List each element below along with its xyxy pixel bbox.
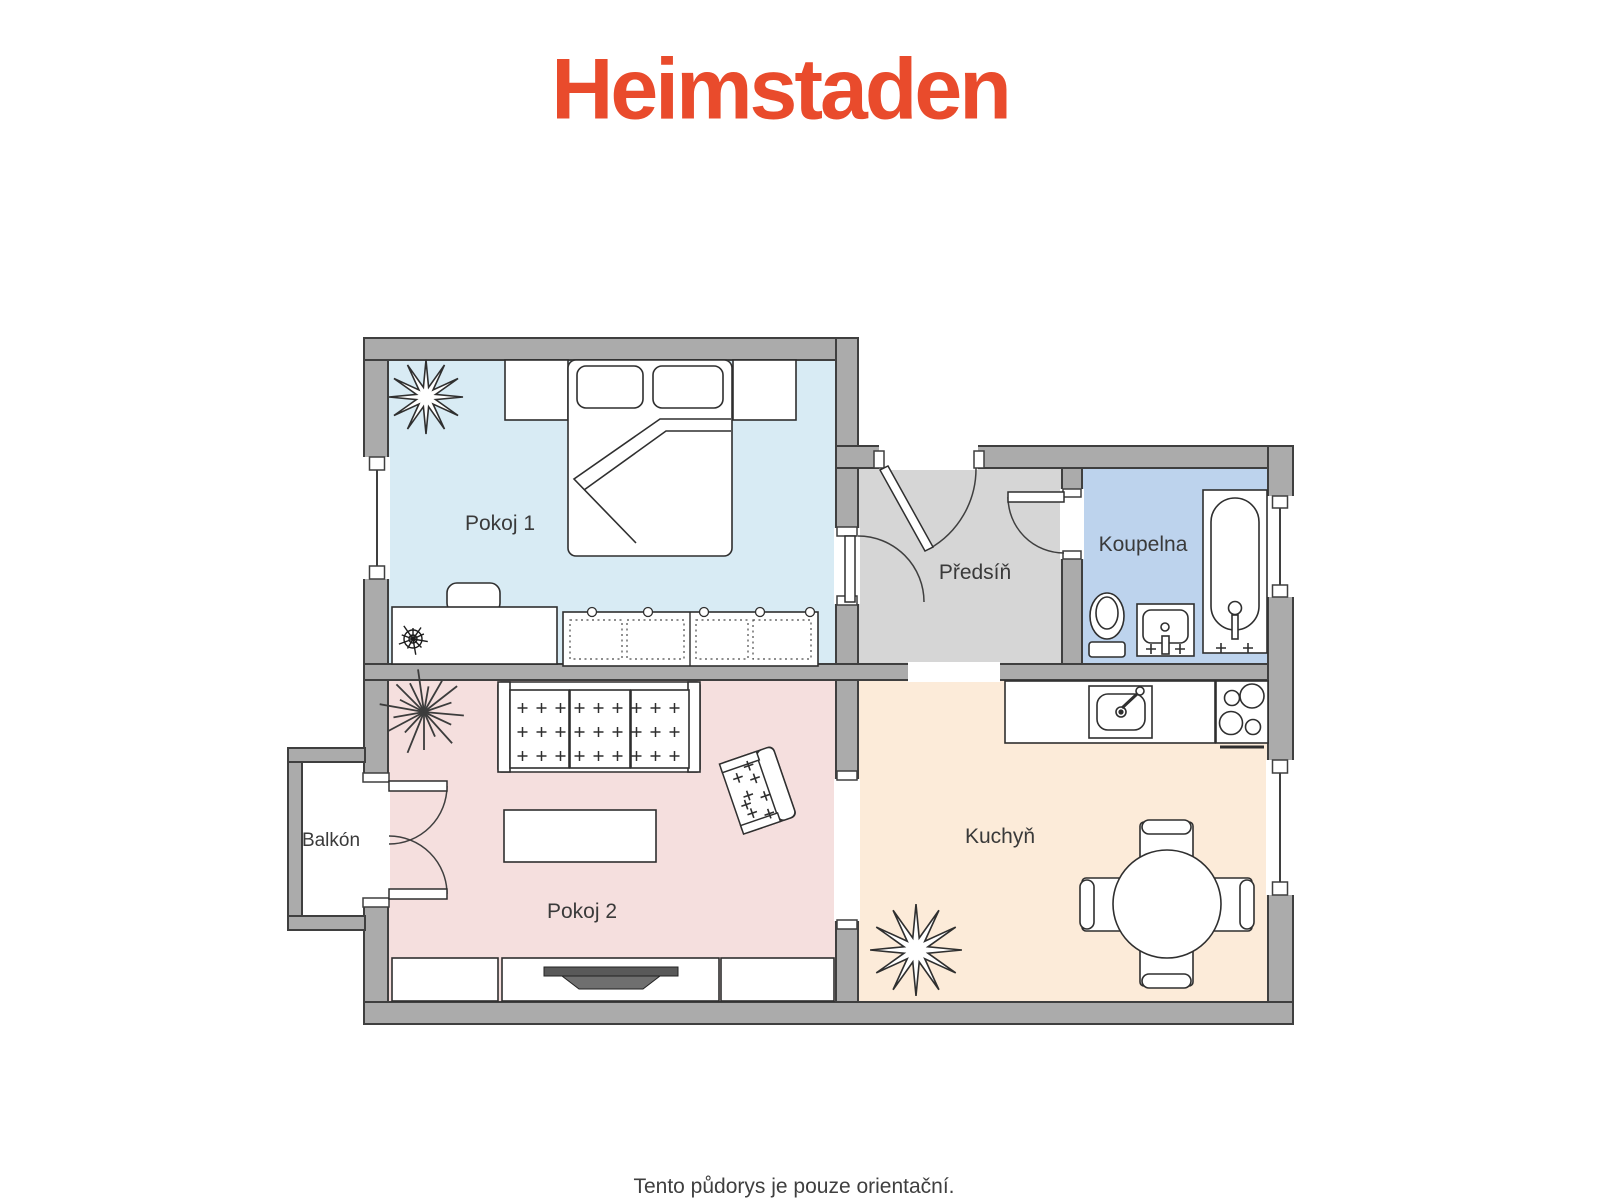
page: Heimstaden [0,0,1600,1200]
stove-icon [1216,681,1268,747]
sink-icon [1137,604,1194,656]
jamb [837,527,857,536]
kitchen-sink-icon [1089,686,1152,738]
tv-icon [544,967,678,976]
room-label-pokoj2: Pokoj 2 [547,900,617,924]
floor-plan [0,0,1600,1200]
room-label-kuchyn: Kuchyň [965,825,1035,849]
tv-stand [562,976,660,989]
wardrobe [563,608,818,667]
sideboard [392,958,498,1001]
pokoj2-kitchen-passage [834,779,860,921]
jamb [874,451,884,468]
balcony-door-opening [362,781,390,899]
jamb [974,451,984,468]
entrance-opening [879,444,978,470]
wall-bottom [364,1002,1293,1024]
room-label-pokoj1: Pokoj 1 [465,512,535,536]
room-label-koupelna: Koupelna [1099,533,1188,557]
pillow [653,366,723,408]
tv-sideboard [392,958,834,1001]
toilet-icon [1089,593,1125,657]
balcony-wall-bottom [288,916,365,930]
jamb [1063,489,1081,497]
balcony-wall-left [288,748,302,930]
jamb [363,898,389,907]
dining-table-icon [1113,850,1221,958]
bed-icon [568,360,732,556]
coffee-table [504,810,656,862]
room-label-balkon: Balkón [302,830,360,852]
hall-kitchen-passage [908,662,1000,682]
jamb [1063,551,1081,559]
desk [392,607,557,664]
pillow [577,366,643,408]
bathtub-icon [1203,490,1267,653]
jamb [363,773,389,782]
jamb [837,920,857,929]
jamb [837,771,857,780]
wall-top-pokoj1 [364,338,858,360]
sideboard [721,958,834,1001]
nightstand [505,360,568,420]
sofa-icon [498,682,700,772]
balcony-wall-top [288,748,365,762]
disclaimer-text: Tento půdorys je pouze orientační. [633,1175,954,1199]
nightstand [733,360,796,420]
room-label-predsin: Předsíň [939,561,1011,585]
